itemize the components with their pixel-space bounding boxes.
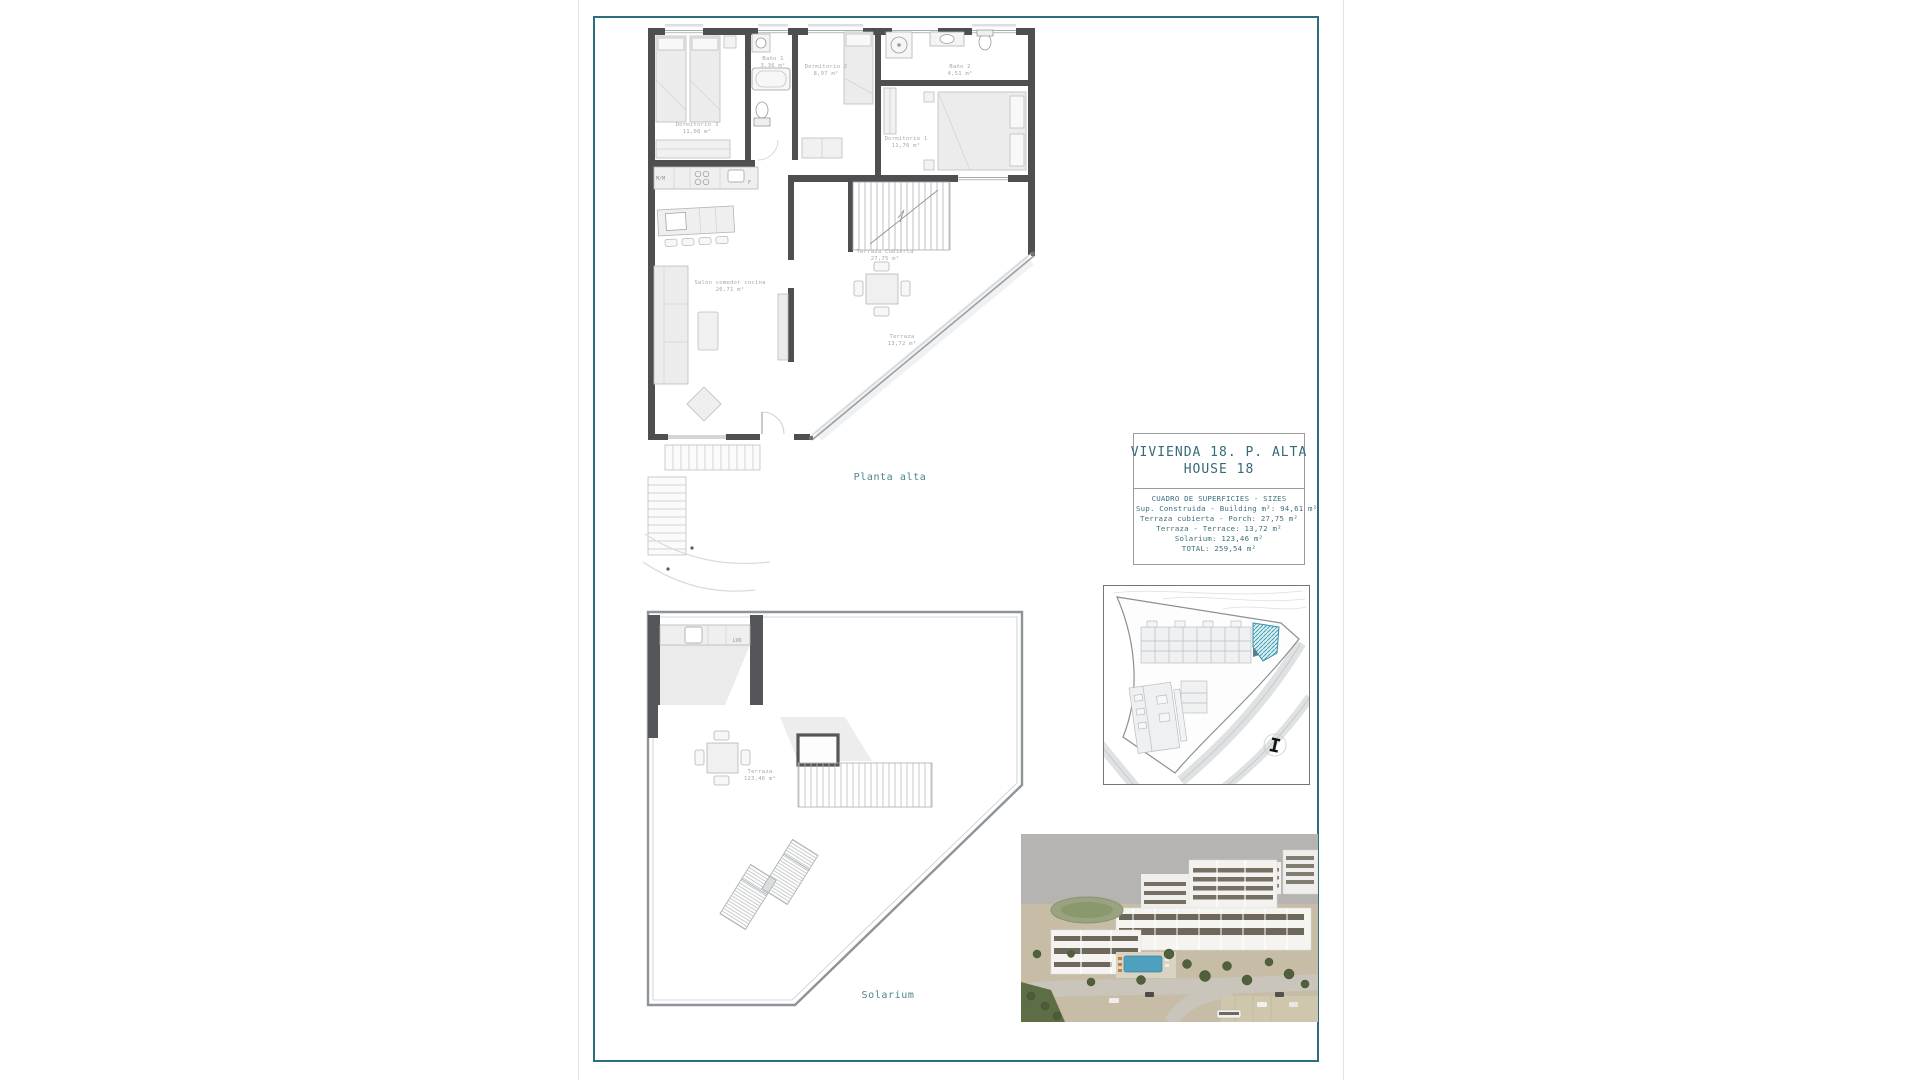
room-label: Dormitorio 3 [676,122,719,128]
room-area: 11,08 m² [683,128,712,135]
bathroom1-fixtures [752,34,790,160]
aerial-render [1021,834,1318,1022]
terrace-dining-set [854,262,910,316]
room-label: Salón comedor cocina [694,279,765,286]
title-block-header: VIVIENDA 18. P. ALTA HOUSE 18 [1134,434,1304,489]
bathroom2-fixtures [886,30,993,58]
solarium-room-label: Terraza 123,46 m² [744,769,776,782]
room-area: 27,75 m² [871,255,900,262]
interior-stairs [853,182,950,250]
house-title-en: HOUSE 18 [1184,462,1255,477]
room-label: Terraza Cubierta [856,249,913,255]
sizes-table: CUADRO DE SUPERFICIES - SIZES Sup. Const… [1134,489,1304,554]
room-area: 4,51 m² [948,70,973,77]
sizes-row-terrace: Terraza - Terrace: 13,72 m² [1136,524,1302,534]
sizes-table-title: CUADRO DE SUPERFICIES - SIZES [1136,494,1302,504]
room-label: Baño 1 [762,56,783,62]
solarium-floor-plan: LVD Terraz [640,605,1035,1017]
room-area: 123,46 m² [744,775,776,782]
bedroom1-furniture [884,88,1026,170]
armchair [687,387,721,421]
tv-bench [778,294,788,360]
sizes-row-solarium: Solarium: 123,46 m² [1136,534,1302,544]
room-area: 26,71 m² [716,286,745,293]
townhouse-row [1141,621,1251,663]
sofa [654,266,688,384]
render-mid-townhouses [1116,908,1311,950]
plan-sheet-page: M/M F [0,0,1920,1080]
room-label: Baño 2 [949,64,970,70]
coffee-table [698,312,718,350]
room-label: Terraza [890,334,915,340]
room-label: Terraza [748,769,773,775]
kitchen: M/M F [654,167,758,247]
title-block: VIVIENDA 18. P. ALTA HOUSE 18 CUADRO DE … [1133,433,1305,565]
sizes-row-total: TOTAL: 259,54 m² [1136,544,1302,554]
upper-floor-plan: M/M F [640,22,1040,602]
render-pond [1051,897,1123,923]
kitchen-label-mm: M/M [656,176,665,182]
sizes-row-building: Sup. Construida - Building m²: 94,61 m² [1136,504,1302,514]
room-label: Dormitorio 2 [805,64,848,70]
bedroom2-furniture [802,32,873,158]
kitchen-island [657,206,735,247]
exterior-stairs [643,445,770,591]
upper-floor-title: Planta alta [820,472,960,483]
site-plan-svg: I [1103,585,1310,785]
laundry-label: LVD [732,638,741,644]
kitchen-label-f: F [748,180,751,186]
room-area: 13,72 m² [888,340,917,347]
room-area: 11,76 m² [892,142,921,149]
sizes-row-porch: Terraza cubierta - Porch: 27,75 m² [1136,514,1302,524]
terrace-door [760,412,794,440]
room-area: 8,97 m² [814,70,839,77]
bedroom3-furniture [656,36,736,158]
site-plan-inset: I [1103,585,1310,785]
room-label: Dormitorio 1 [885,136,928,142]
solarium-floor-title: Solarium [818,990,958,1001]
house-title-es: VIVIENDA 18. P. ALTA [1131,445,1308,460]
aerial-render-svg [1021,834,1318,1022]
room-area: 3,36 m² [761,62,786,69]
